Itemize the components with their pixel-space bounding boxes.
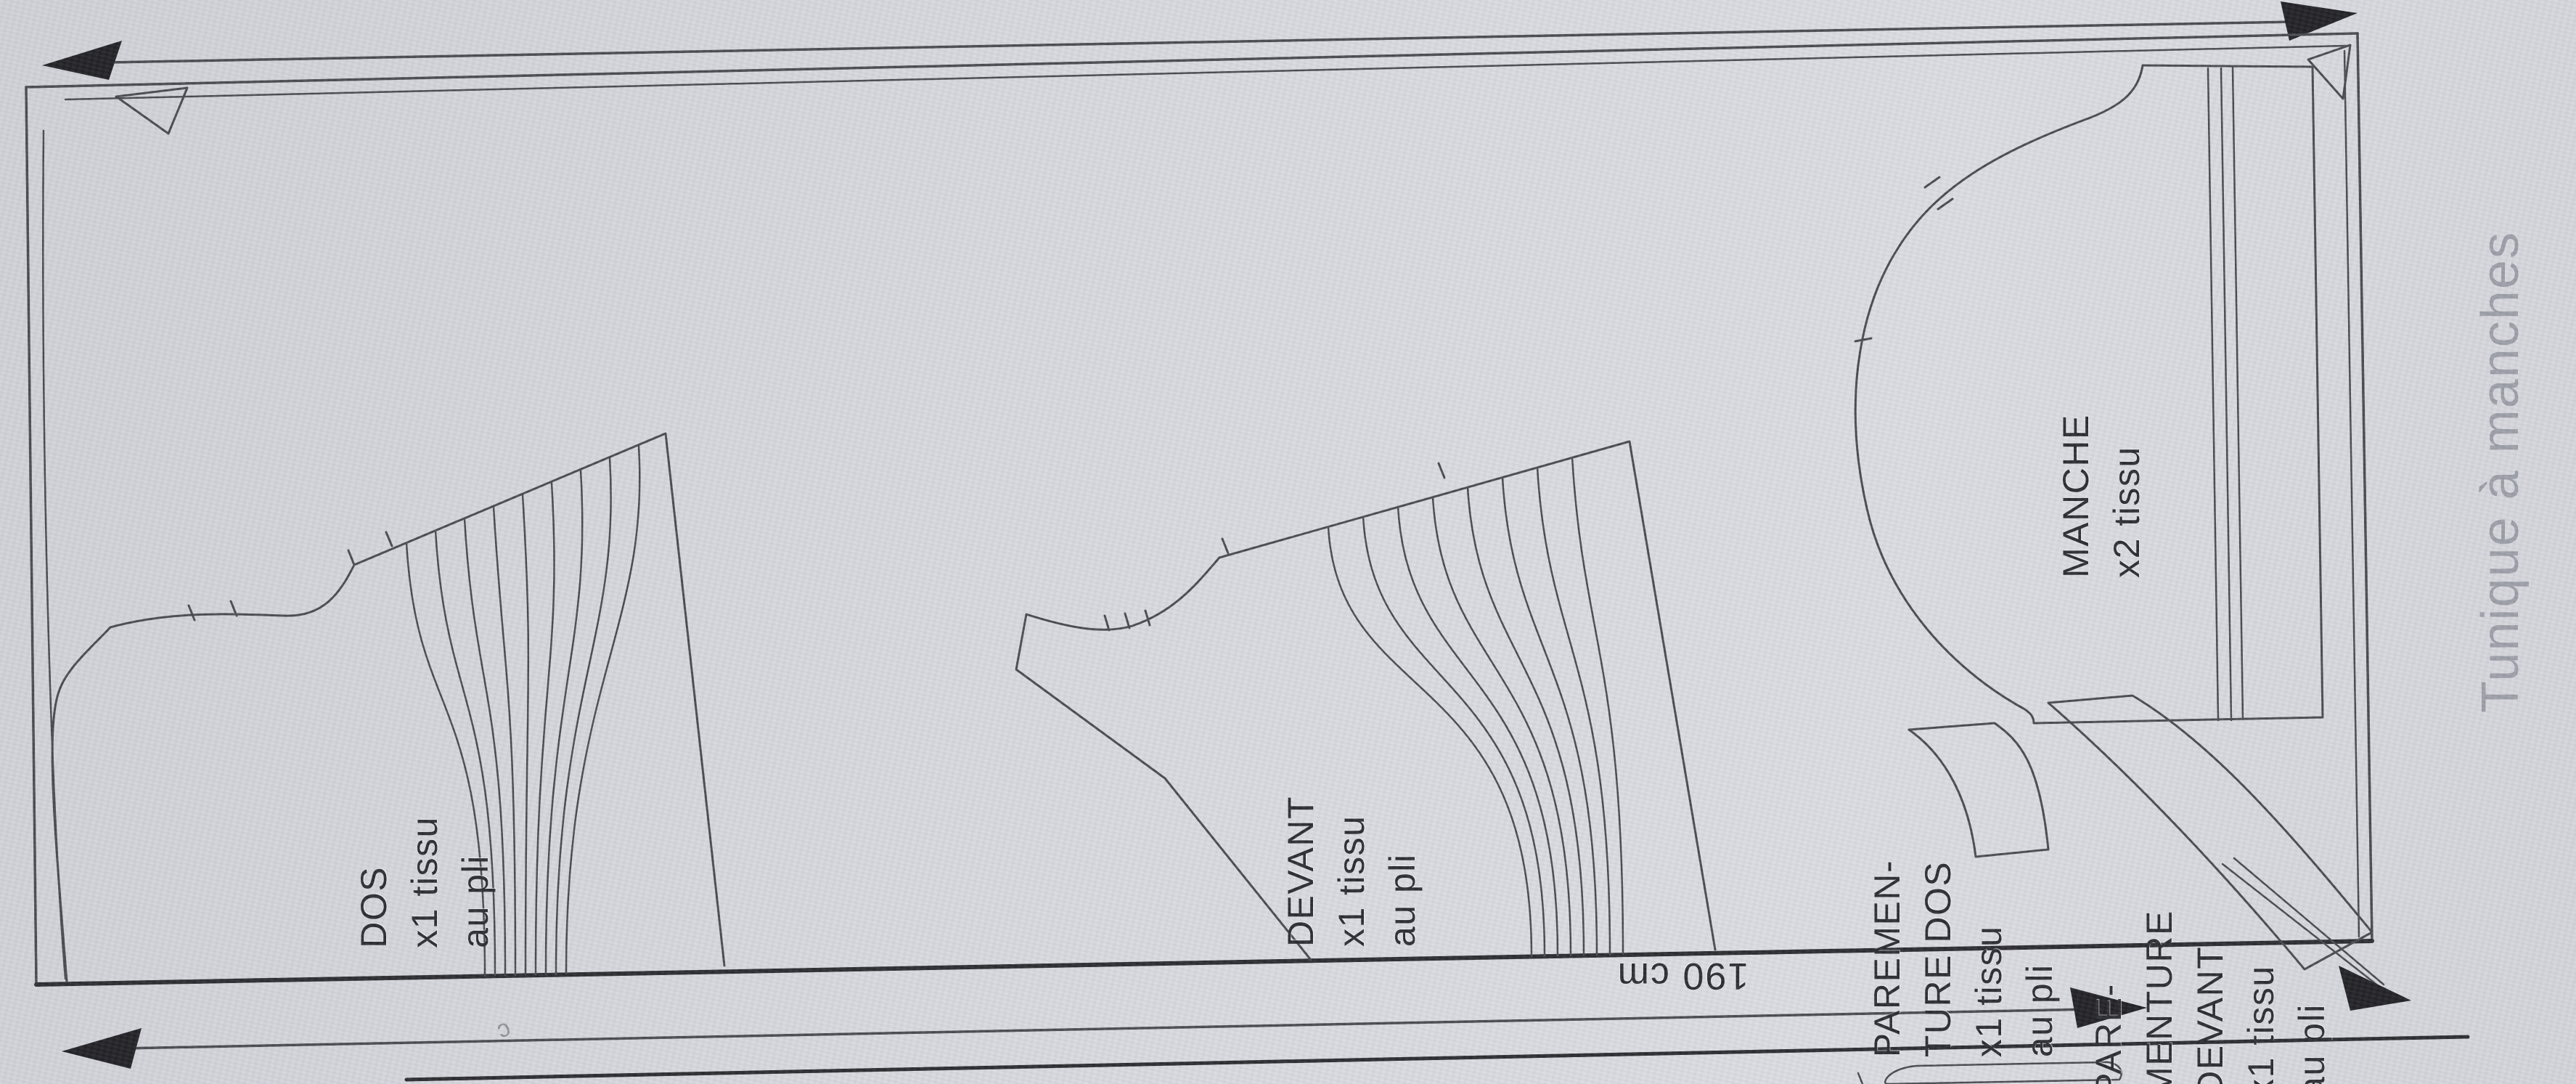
parementure-dos-name-2: TURE DOS bbox=[1913, 860, 1963, 1057]
fabric-width-label: 190 cm bbox=[1616, 954, 1749, 998]
page-title: Tunique à manches bbox=[2471, 231, 2530, 713]
fold-corner-mark-left-icon bbox=[116, 88, 187, 134]
devant-quantity: x1 tissu bbox=[1326, 796, 1377, 947]
dos-fold-note: au pli bbox=[450, 816, 501, 948]
devant-piece-label: DEVANT x1 tissu au pli bbox=[1275, 796, 1428, 947]
devant-name: DEVANT bbox=[1275, 796, 1326, 947]
dos-name: DOS bbox=[348, 816, 399, 948]
bottom-dimension-arrow-left-icon bbox=[62, 1028, 142, 1069]
manche-piece-outline bbox=[1855, 65, 2323, 723]
parementure-devant-fold-note: au pli bbox=[2286, 910, 2337, 1084]
parementure-devant-name-2: MENTURE bbox=[2134, 910, 2185, 1084]
parementure-dos-quantity: x1 tissu bbox=[1963, 860, 2014, 1057]
parementure-dos-name-1: PAREMEN- bbox=[1862, 860, 1913, 1057]
parementure-dos-piece-outline bbox=[1909, 723, 2048, 857]
dos-quantity: x1 tissu bbox=[399, 816, 450, 948]
pattern-sheet-photo: DOS x1 tissu au pli DEVANT x1 tissu au p… bbox=[0, 0, 2576, 1084]
parementure-dos-label: PAREMEN- TURE DOS x1 tissu au pli bbox=[1862, 860, 2065, 1057]
devant-fold-note: au pli bbox=[1377, 796, 1428, 947]
parementure-devant-name-3: DEVANT bbox=[2185, 910, 2236, 1084]
fold-arrow-head-icon bbox=[2339, 966, 2411, 1011]
parementure-devant-quantity: x1 tissu bbox=[2236, 910, 2286, 1084]
manche-quantity: x2 tissu bbox=[2101, 414, 2152, 578]
manche-piece-label: MANCHE x2 tissu bbox=[2050, 414, 2152, 578]
top-dimension-arrow-left-icon bbox=[42, 41, 122, 80]
parementure-dos-fold-note: au pli bbox=[2014, 860, 2065, 1057]
parementure-devant-label: PARE- MENTURE DEVANT x1 tissu au pli bbox=[2083, 910, 2337, 1084]
bottom-dimension-line bbox=[62, 987, 2147, 1069]
manche-name: MANCHE bbox=[2050, 414, 2101, 578]
parementure-devant-name-1: PARE- bbox=[2083, 910, 2134, 1084]
dos-piece-label: DOS x1 tissu au pli bbox=[348, 816, 501, 948]
